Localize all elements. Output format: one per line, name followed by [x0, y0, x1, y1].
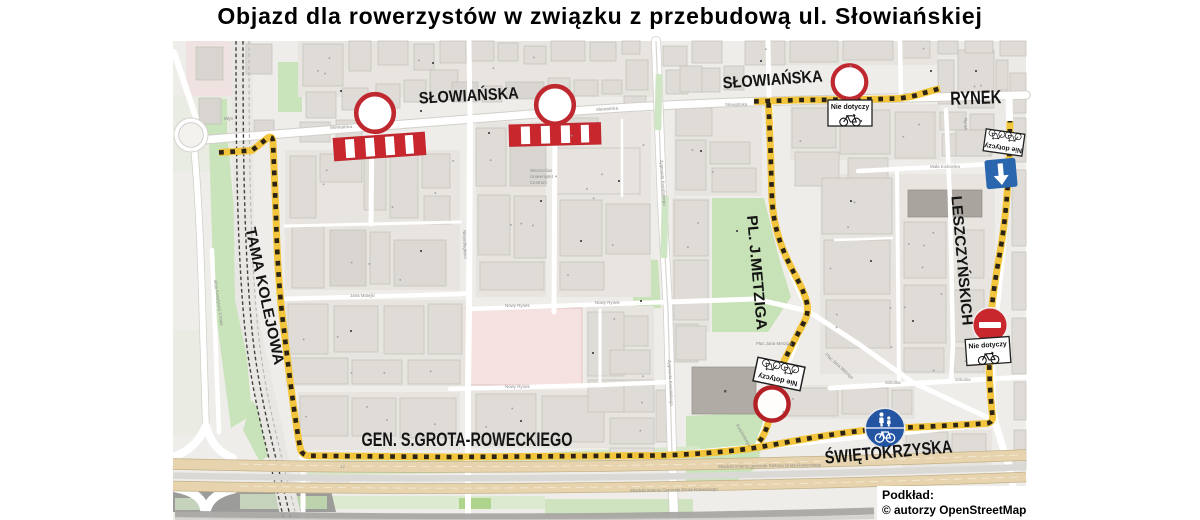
svg-text:Szkolna: Szkolna	[885, 380, 901, 385]
svg-text:Nie dotyczy: Nie dotyczy	[831, 104, 869, 111]
svg-text:RYNEK: RYNEK	[950, 87, 1002, 110]
svg-text:Niepodległości: Niepodległości	[462, 230, 468, 259]
svg-text:Wenzzelius: Wenzzelius	[530, 168, 553, 173]
svg-text:Podkład:: Podkład:	[882, 488, 934, 502]
svg-text:Jana Matejki: Jana Matejki	[350, 293, 375, 298]
svg-text:Młyn: Młyn	[224, 116, 234, 121]
svg-text:Uniwersytet: Uniwersytet	[530, 174, 554, 179]
svg-text:Rynek: Rynek	[963, 118, 968, 131]
svg-text:Nowy Rynek: Nowy Rynek	[505, 384, 530, 389]
svg-text:Centrum: Centrum	[530, 180, 547, 185]
svg-text:Mała Kościelna: Mała Kościelna	[930, 164, 960, 169]
svg-text:GEN. S.GROTA-ROWECKIEGO: GEN. S.GROTA-ROWECKIEGO	[362, 430, 573, 451]
svg-text:12: 12	[340, 464, 345, 469]
svg-text:Nowy Rynek: Nowy Rynek	[505, 303, 530, 308]
svg-text:Nowy Rynek: Nowy Rynek	[595, 300, 620, 305]
svg-text:Słowiańska: Słowiańska	[725, 102, 748, 107]
svg-text:Plac Jana Metziga: Plac Jana Metziga	[756, 341, 792, 346]
svg-text:© autorzy OpenStreetMap: © autorzy OpenStreetMap	[882, 503, 1026, 517]
svg-text:Szkolna: Szkolna	[955, 377, 971, 382]
